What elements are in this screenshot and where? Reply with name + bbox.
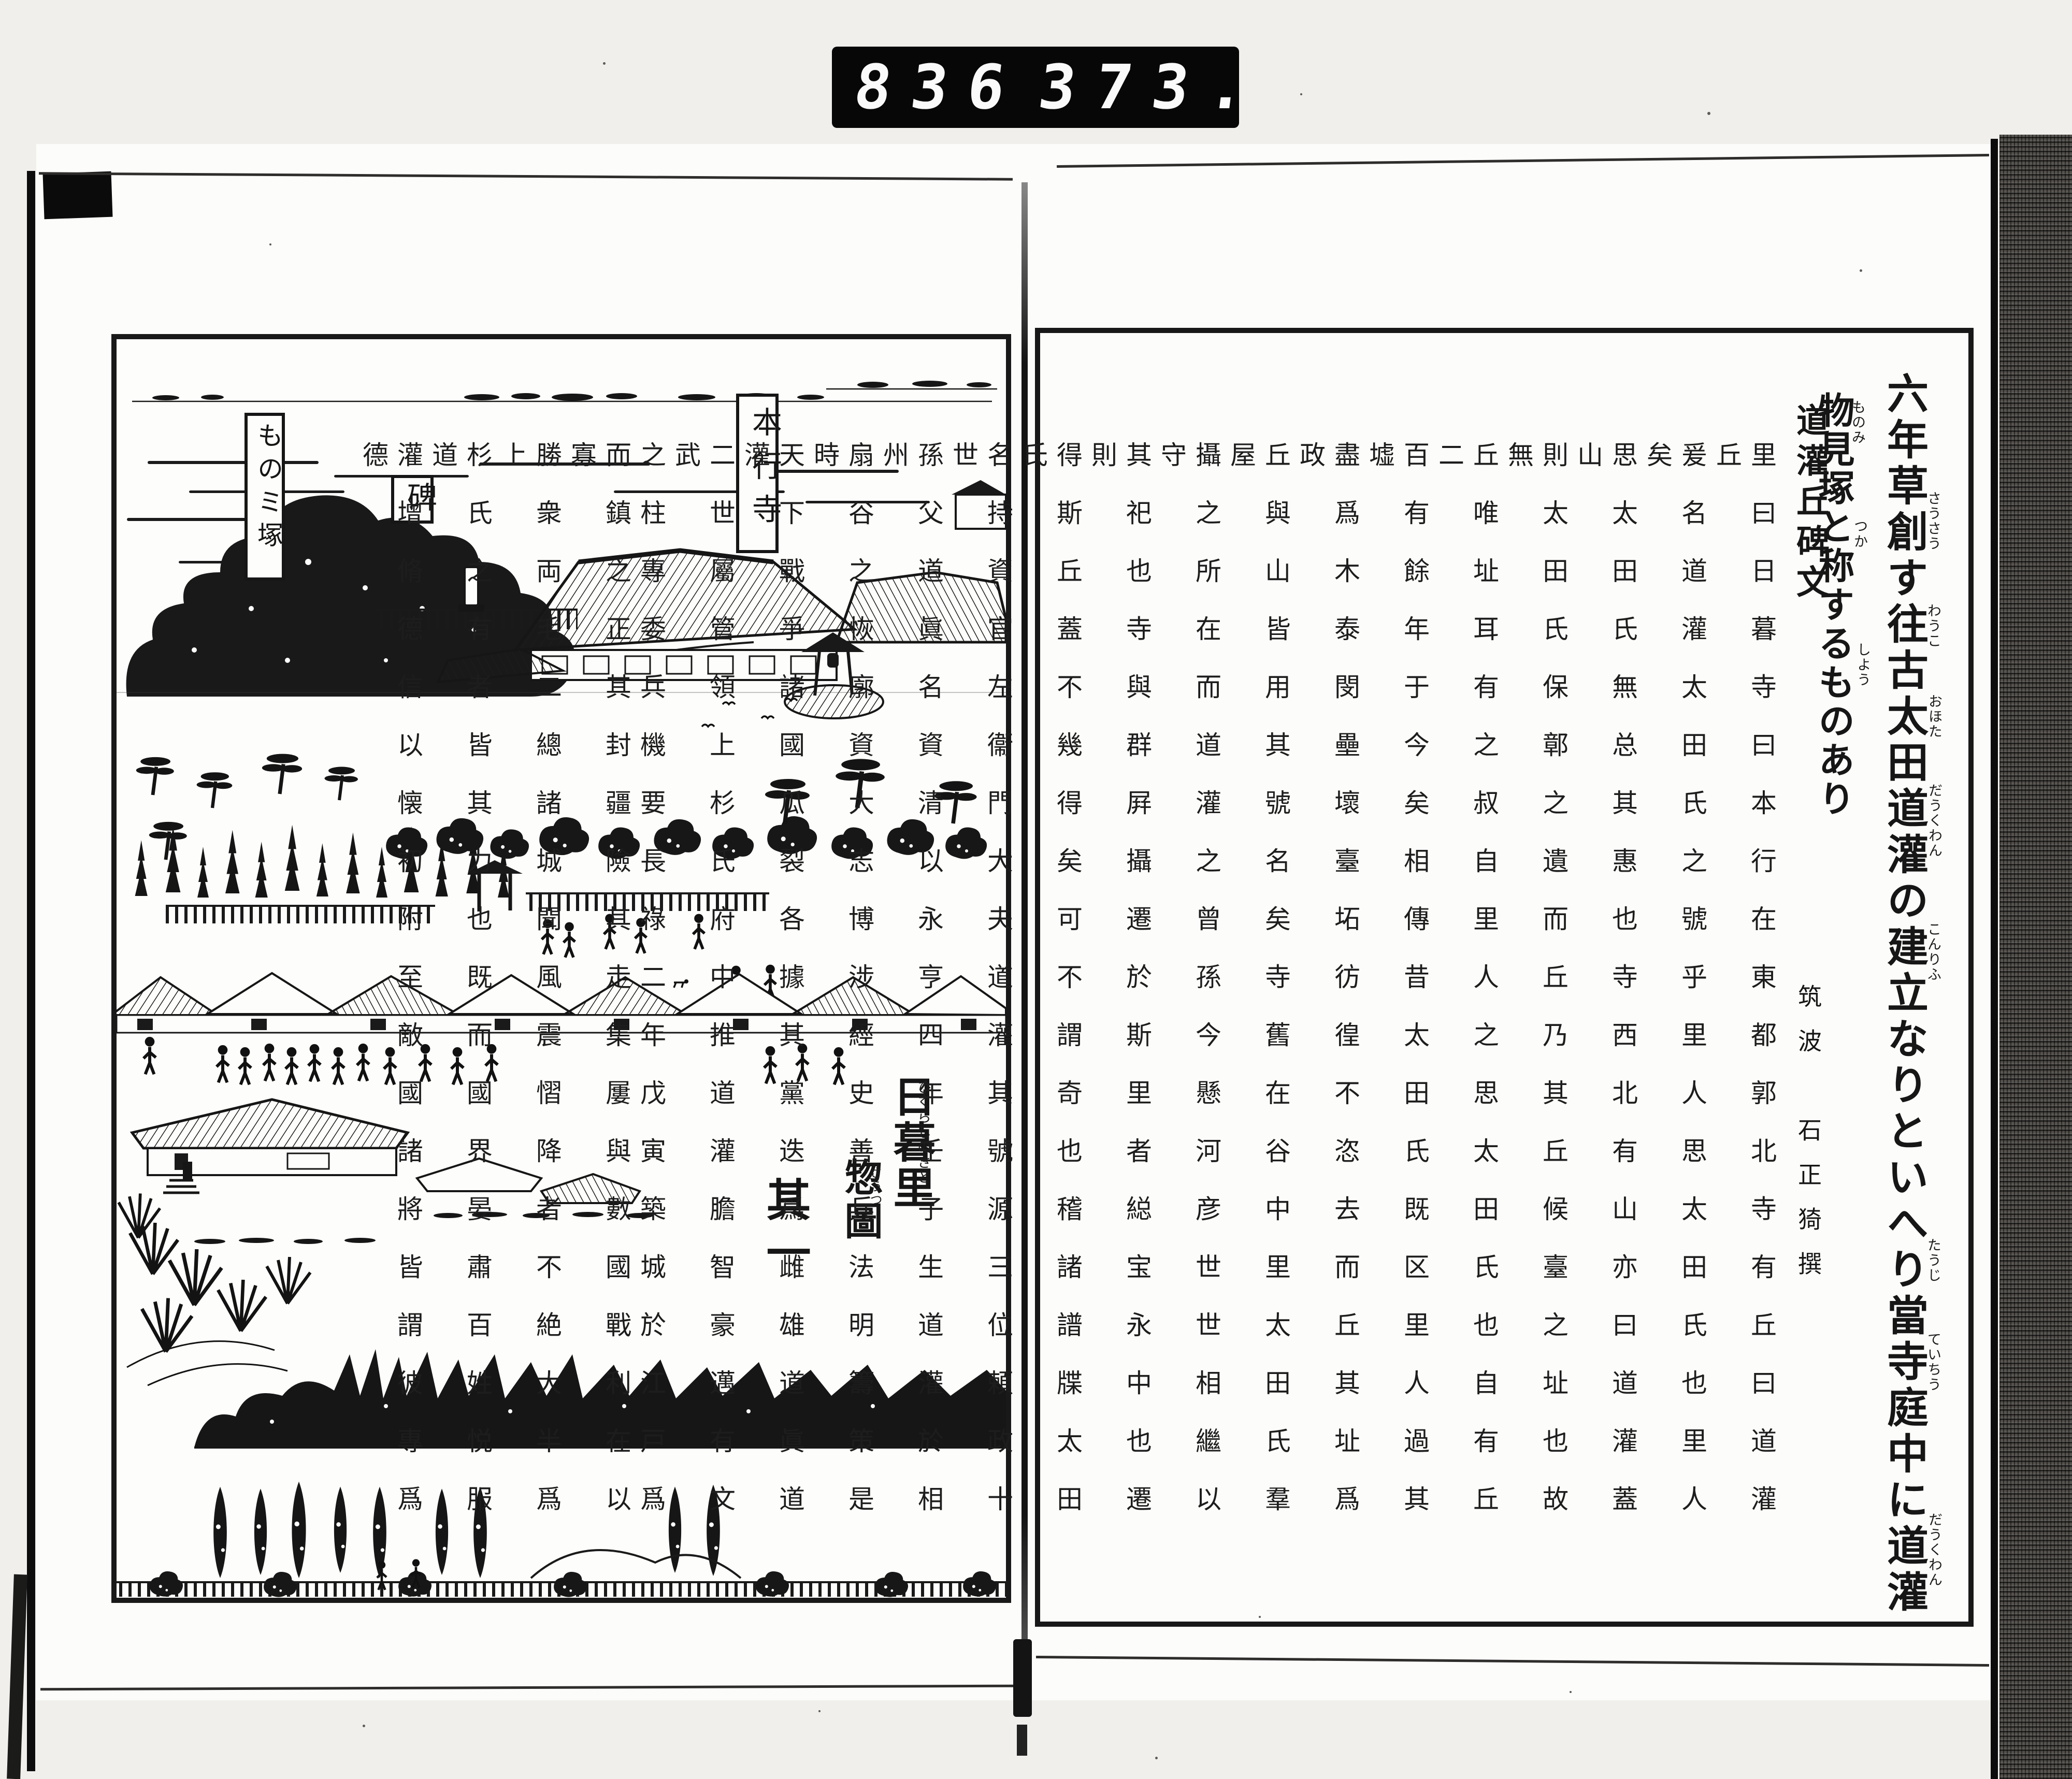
scanned-book-spread: 836 373.	[0, 0, 2072, 1779]
inscription-column: 孫父道眞名資清以永亨四年壬子生道灌於相州	[876, 441, 946, 1596]
inscription-column: 思太田氏無总其惠也寺西北有山亦曰道灌蓋山	[1571, 441, 1640, 1596]
inscription-author: 筑波 石正猗撰	[1791, 984, 1825, 1296]
furigana-tsuka: つか	[1849, 519, 1869, 549]
inscription-column: 天下戰爭諸國瓜裂各據其黨迭爲雌雄道眞道灌	[738, 441, 807, 1596]
furigana-doukan2: だうくわん	[1924, 1512, 1944, 1587]
gutter-binding-mark	[1013, 1639, 1032, 1717]
inscription-column: 扇谷之恢廓資大志博涉經史善兵法明籌策是時	[807, 441, 876, 1596]
furigana-ouko: わうこ	[1923, 603, 1943, 648]
inscription-column: 爰名道灌太田氏之號乎里人思太田氏也里人矣	[1640, 441, 1709, 1596]
furigana-touji: たうじ	[1923, 1238, 1943, 1283]
noise-speck	[269, 243, 271, 245]
noise-speck	[1259, 1616, 1261, 1618]
frame-counter-left: 836	[850, 47, 1029, 128]
inscription-column: 則太田氏保鄣之遺而丘乃其丘候臺之址也故無	[1501, 441, 1571, 1596]
inscription-column: 盡爲木泰閔壘壞臺坧彷徨不恣去而丘其址爲政	[1293, 441, 1362, 1596]
inscription-column: 得斯丘蓋不幾得矣可不謂奇也稽諸譜牒太田氏	[1015, 441, 1085, 1596]
gutter-binding-mark-2	[1017, 1725, 1027, 1756]
inscription-column: 名持資官左衞門大夫道灌其號源三位頼政十世	[946, 441, 1015, 1596]
noise-speck	[603, 62, 606, 65]
noise-speck	[363, 1725, 365, 1727]
inscription-column: 攝之所在而道灌之曾孫今懸河彦世世相繼以守	[1154, 441, 1224, 1596]
headline-line1: 六年草創す往古太田道灌の建立なりといへり當寺庭中に道灌	[1874, 372, 1934, 1616]
noise-speck	[1707, 112, 1710, 115]
inscription-column: 而鎮之正其封疆險其走集屢與數國戰利在以寡	[564, 441, 634, 1596]
inscription-column: 百有餘年于今矣相傳昔太田氏既区里人過其墟	[1362, 441, 1432, 1596]
inscription-column: 其祀也寺與群屛攝遷於斯里者縂宝永中也遷則	[1085, 441, 1154, 1596]
cartouche-monomizuka: ものミ塚	[250, 422, 287, 555]
noise-speck	[1860, 269, 1862, 272]
furigana-doukan: だうくわん	[1924, 783, 1944, 858]
furigana-konryu: こんりふ	[1923, 922, 1943, 982]
noise-speck	[1155, 1757, 1158, 1759]
inscription-column: 之柱專委兵機要長祿二年戊寅築城於江戸爲	[634, 441, 668, 1596]
inscription-column: 丘與山皆用其號名矣寺舊在谷中里太田氏羣屋	[1224, 441, 1293, 1596]
inscription-column: 勝衆両毛二總諸城聞風震慴降者不絶大半爲上	[495, 441, 564, 1596]
inscription-column: 杉氏之有者皆其力也既而國界晏肅百姓悦服道	[425, 441, 495, 1596]
scan-corner-mark	[43, 171, 113, 220]
film-edge-left	[27, 171, 35, 1771]
furigana-monomi: ものみ	[1847, 400, 1867, 445]
inscription-column: 灌增脩德信以懐初附至敵國諸將皆謂彼專爲德	[356, 441, 425, 1596]
furigana-shou: しよう	[1852, 642, 1873, 687]
noise-speck	[818, 1710, 821, 1712]
noise-speck	[1300, 93, 1302, 95]
film-edge-right-texture	[1999, 135, 2072, 1779]
inscription-column: 二世屬管領上杉氏府中推道灌膽智豪邁有文武	[668, 441, 738, 1596]
inscription-title: 道灌丘碑文	[1786, 403, 1834, 605]
furigana-teichuu: ていちう	[1923, 1332, 1943, 1392]
frame-counter: 836 373.	[832, 47, 1239, 128]
inscription-column: 里曰日暮寺曰本行在東都郭北寺有丘曰道灌丘	[1709, 441, 1779, 1596]
inscription-column: 丘唯址耳有之叔自里人之思太田氏也自有丘二	[1432, 441, 1501, 1596]
furigana-oota: おほた	[1924, 694, 1944, 739]
noise-speck	[1570, 1691, 1572, 1693]
inscription-body: 里曰日暮寺曰本行在東都郭北寺有丘曰道灌丘 爰名道灌太田氏之號乎里人思太田氏也里人…	[1047, 441, 1779, 1596]
furigana-sousou: さうさう	[1923, 491, 1943, 551]
film-edge-right-line	[1991, 139, 1998, 1779]
film-edge-left-bottom	[7, 1574, 27, 1779]
frame-counter-right: 373.	[1034, 47, 1270, 128]
